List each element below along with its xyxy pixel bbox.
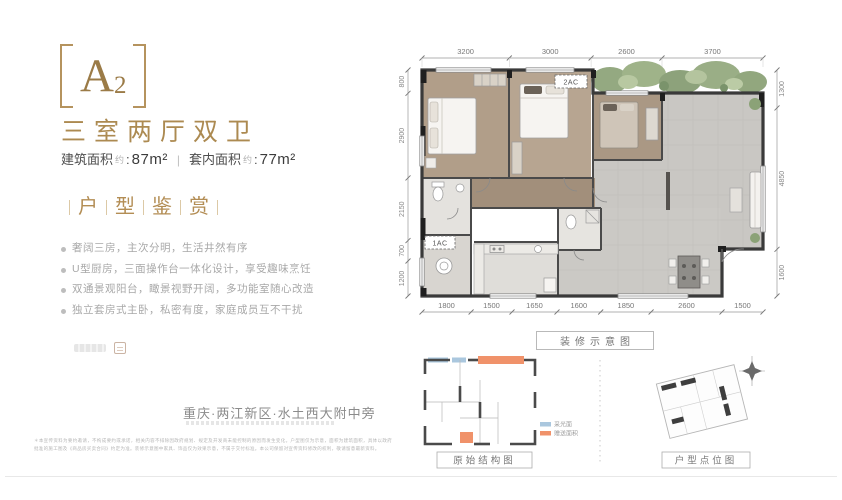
card-bottom-edge <box>5 476 837 495</box>
mini-diagrams: 采光面 赠送面积 原始结构图 <box>400 352 800 475</box>
svg-text:采光面: 采光面 <box>554 421 572 429</box>
svg-text:1200: 1200 <box>399 271 406 287</box>
unit-position-caption: 户型点位图 <box>675 455 738 467</box>
bracket-right-icon <box>133 44 146 108</box>
floorplan-drawing: 2AC 1AC 3200 3000 2600 3700 <box>378 30 798 330</box>
svg-text:赠送面积: 赠送面积 <box>554 430 578 438</box>
area-value-1: 87m² <box>132 151 168 168</box>
floorplan-caption: 装修示意图 <box>536 331 654 350</box>
unit-type-title: 三室两厅双卫 <box>61 112 259 148</box>
unit-code-sub: 2 <box>114 73 127 100</box>
svg-text:4850: 4850 <box>779 171 786 187</box>
svg-text:2600: 2600 <box>618 47 635 56</box>
original-structure-diagram: 采光面 赠送面积 原始结构图 <box>425 356 578 468</box>
area-approx-1: 约 <box>115 153 124 168</box>
svg-text:1500: 1500 <box>483 301 500 310</box>
section-header: 户 型 鉴 赏 <box>61 197 226 217</box>
selling-points-list: 奢阔三房，主次分明，生活井然有序 U型厨房，三面操作台一体化设计，享受趣味烹饪 … <box>61 243 371 325</box>
area-label-1: 建筑面积 <box>61 149 113 168</box>
unit-code: A 2 <box>80 53 126 100</box>
area-separator: | <box>177 153 180 167</box>
area-approx-2: 约 <box>243 153 252 168</box>
svg-text:1600: 1600 <box>570 301 587 310</box>
svg-text:1800: 1800 <box>438 301 455 310</box>
svg-text:3000: 3000 <box>542 47 559 56</box>
bullet-icon <box>61 268 66 273</box>
svg-text:700: 700 <box>399 245 406 257</box>
bracket-left-icon <box>60 44 73 108</box>
bullet-icon <box>61 309 66 314</box>
developer-wordmark <box>74 344 106 352</box>
svg-text:1600: 1600 <box>779 265 786 281</box>
svg-text:1850: 1850 <box>618 301 635 310</box>
ac-label-2ac: 2AC <box>563 80 578 87</box>
list-item: 独立套房式主卧，私密有度，家庭成员互不干扰 <box>61 305 371 316</box>
original-structure-caption: 原始结构图 <box>453 455 516 467</box>
svg-text:3200: 3200 <box>457 47 474 56</box>
bullet-icon <box>61 247 66 252</box>
svg-text:2600: 2600 <box>678 301 695 310</box>
unit-position-diagram: 户型点位图 <box>656 356 765 468</box>
svg-text:3700: 3700 <box>704 47 721 56</box>
list-item: 奢阔三房，主次分明，生活井然有序 <box>61 243 371 254</box>
unit-code-main: A <box>80 53 114 100</box>
ac-label-1ac: 1AC <box>432 241 447 248</box>
svg-text:2150: 2150 <box>399 201 406 217</box>
list-item: 双通景观阳台，瞰景视野开阔，多功能室随心改造 <box>61 284 371 295</box>
compass-icon <box>739 356 765 386</box>
svg-text:1500: 1500 <box>734 301 751 310</box>
area-label-2: 套内面积 <box>189 149 241 168</box>
developer-logo <box>74 342 126 354</box>
location-subtext-blur <box>186 421 336 425</box>
svg-text:800: 800 <box>399 76 406 88</box>
list-item: U型厨房，三面操作台一体化设计，享受趣味烹饪 <box>61 264 371 275</box>
unit-code-badge: A 2 <box>60 44 146 108</box>
area-value-2: 77m² <box>260 151 296 168</box>
landscape-greenery <box>591 61 767 94</box>
area-info: 建筑面积 约 : 87m² | 套内面积 约 : 77m² <box>61 149 296 168</box>
svg-text:1650: 1650 <box>526 301 543 310</box>
svg-text:1300: 1300 <box>779 81 786 97</box>
project-location: 重庆·两江新区·水土西大附中旁 <box>183 403 376 422</box>
bullet-icon <box>61 288 66 293</box>
svg-text:2900: 2900 <box>399 128 406 144</box>
legal-disclaimer: ＊本宣传资料为要约邀请，不构成要约或承诺，相关内容不排除因政府规划、规定及开发商… <box>34 437 392 453</box>
developer-seal-icon <box>114 342 126 354</box>
legend: 采光面 赠送面积 <box>540 421 578 438</box>
